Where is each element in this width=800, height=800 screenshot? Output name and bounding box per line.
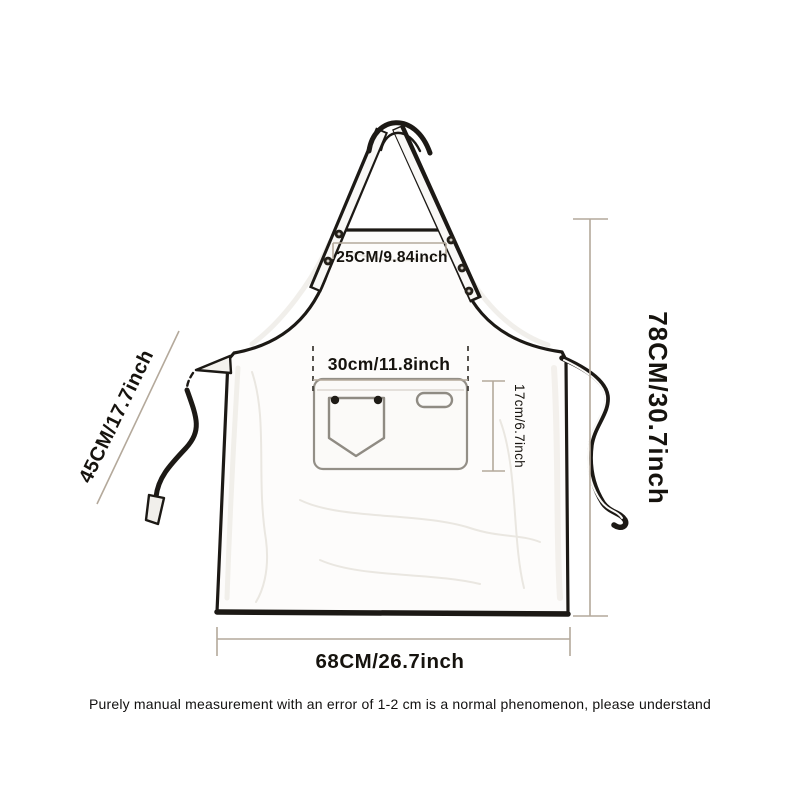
left-tie-tab: [196, 356, 231, 373]
pocket-rivet: [331, 396, 339, 404]
neck-width-label: 25CM/9.84inch: [336, 249, 448, 266]
rivet-highlight: [450, 239, 453, 242]
chest-pocket: [314, 379, 467, 469]
rivet-highlight: [338, 233, 341, 236]
body-width-label: 68CM/26.7inch: [316, 650, 465, 673]
measurement-disclaimer: Purely manual measurement with an error …: [0, 696, 800, 712]
rivet-highlight: [468, 290, 471, 293]
right-tie-ribbon: [562, 358, 626, 527]
left-tie-tip: [146, 495, 164, 524]
pen-slot: [417, 393, 452, 407]
left-waist-tie: [146, 356, 231, 524]
apron-size-diagram: 25CM/9.84inch 30cm/11.8inch 17cm/6.7inch…: [0, 0, 800, 800]
right-waist-tie: [562, 358, 626, 527]
rivet-highlight: [461, 267, 464, 270]
pocket-rivet: [374, 396, 382, 404]
rivet-highlight: [327, 260, 330, 263]
pocket-width-label: 30cm/11.8inch: [328, 354, 451, 374]
pocket-depth-label: 17cm/6.7inch: [512, 384, 527, 468]
left-tie-stitch: [187, 373, 193, 389]
apron-sketch-canvas: 25CM/9.84inch 30cm/11.8inch 17cm/6.7inch…: [0, 0, 800, 800]
apron-hem: [217, 612, 568, 614]
body-width-dimension: 68CM/26.7inch: [217, 627, 570, 673]
body-height-label: 78CM/30.7inch: [643, 311, 673, 505]
body-height-dimension: 78CM/30.7inch: [573, 219, 673, 616]
left-tie-ribbon: [156, 390, 196, 497]
side-tie-label: 45CM/17.7inch: [75, 346, 159, 486]
